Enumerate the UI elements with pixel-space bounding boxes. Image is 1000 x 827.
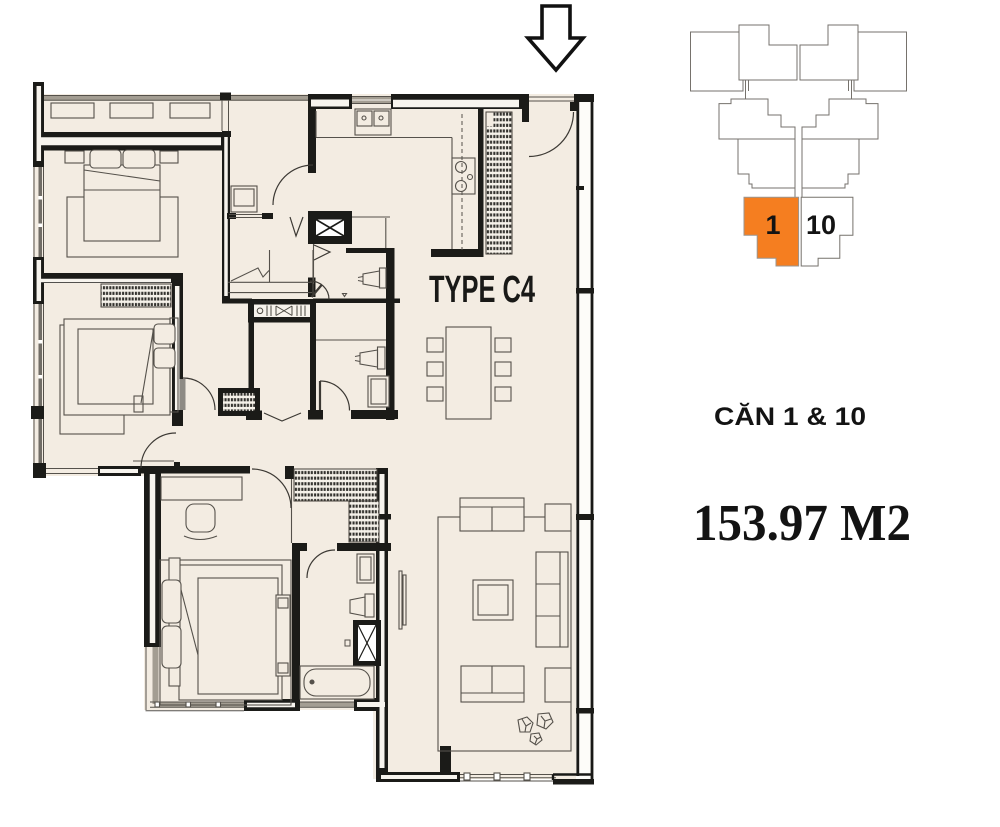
svg-text:TYPE C4: TYPE C4 [429,269,535,311]
svg-text:1: 1 [765,210,780,240]
svg-text:CĂN 1 & 10: CĂN 1 & 10 [714,402,866,431]
svg-text:153.97 M2: 153.97 M2 [693,495,911,552]
svg-text:10: 10 [806,210,836,240]
